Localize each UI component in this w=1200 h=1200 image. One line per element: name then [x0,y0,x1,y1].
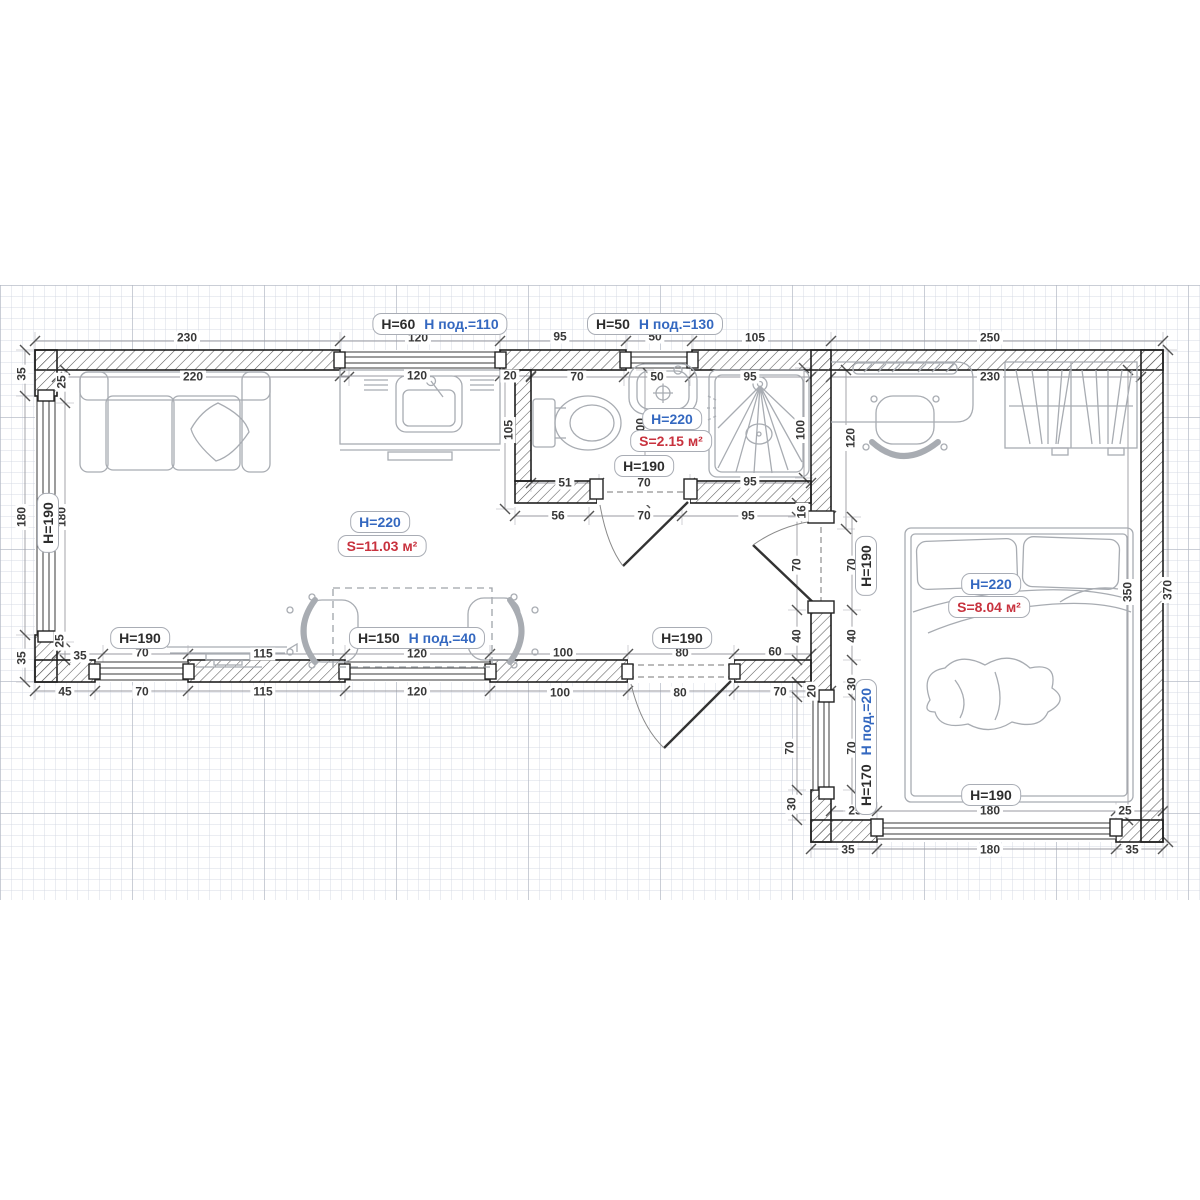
note-badge: S=11.03 м² [338,535,427,557]
note-badge: H=190 [855,536,877,596]
dimension-label: 50 [647,371,666,384]
note-badge: H=220 [350,511,410,533]
dimension-label: 220 [180,371,206,384]
dimension-label: 180 [16,504,29,530]
dimension-label: 35 [1122,844,1141,857]
dimension-label: 70 [634,477,653,490]
note-badge: H=190 [652,627,712,649]
note-badge: H=60H под.=110 [372,313,507,335]
dimension-label: 80 [670,687,689,700]
dimension-label: 70 [784,738,797,757]
dimension-label: 120 [404,686,430,699]
dimension-label: 100 [547,687,573,700]
dimension-label: 95 [740,476,759,489]
dimension-label: 40 [846,626,859,645]
note-badge-text: H под.=20 [857,688,875,755]
note-badge-text: S=2.15 м² [639,432,703,450]
dimension-label: 180 [977,805,1003,818]
note-badge-text: H=170 [857,764,875,806]
note-badge: S=8.04 м² [948,596,1030,618]
labels-layer: 2301209550105250220120207050952303518035… [0,0,1200,1200]
dimension-label: 105 [742,332,768,345]
dimension-label: 250 [977,332,1003,345]
dimension-label: 20 [806,681,819,700]
note-badge-text: H=190 [623,457,665,475]
note-badge: H=150H под.=40 [349,627,485,649]
dimension-label: 115 [250,686,275,699]
dimension-label: 105 [503,417,516,443]
dimension-label: 60 [765,646,784,659]
note-badge: H=170H под.=20 [855,679,877,815]
note-badge-text: H=150 [358,629,400,647]
note-badge-text: H=190 [970,786,1012,804]
note-badge: H=220 [642,408,702,430]
note-badge-text: H под.=130 [639,315,714,333]
dimension-label: 70 [770,686,789,699]
dimension-label: 70 [132,686,151,699]
dimension-label: 25 [1115,805,1134,818]
note-badge-text: H=60 [381,315,415,333]
dimension-label: 25 [56,372,69,391]
dimension-label: 40 [791,626,804,645]
dimension-label: 115 [250,648,275,661]
dimension-label: 25 [54,631,67,650]
note-badge-text: H=190 [661,629,703,647]
note-badge: H=190 [614,455,674,477]
note-badge-text: H=190 [857,545,875,587]
dimension-label: 95 [550,331,569,344]
dimension-label: 70 [791,555,804,574]
dimension-label: 120 [404,370,430,383]
dimension-label: 350 [1122,579,1135,605]
dimension-label: 20 [500,370,519,383]
dimension-label: 230 [174,332,200,345]
dimension-label: 230 [977,371,1003,384]
dimension-label: 370 [1162,577,1175,603]
note-badge-text: H=190 [39,502,57,544]
dimension-label: 16 [796,502,809,521]
dimension-label: 180 [977,844,1003,857]
dimension-label: 35 [70,650,89,663]
note-badge-text: H=220 [970,575,1012,593]
dimension-label: 51 [555,477,574,490]
note-badge-text: H под.=110 [424,315,498,333]
dimension-label: 30 [786,794,799,813]
note-badge: H=190 [37,493,59,553]
note-badge-text: S=11.03 м² [347,537,418,555]
dimension-label: 45 [55,686,74,699]
dimension-label: 100 [795,417,808,443]
dimension-label: 56 [548,510,567,523]
note-badge-text: H=220 [651,410,693,428]
dimension-label: 70 [567,371,586,384]
floor-plan-page: 2301209550105250220120207050952303518035… [0,0,1200,1200]
dimension-label: 35 [838,844,857,857]
dimension-label: 95 [740,371,759,384]
dimension-label: 35 [16,364,29,383]
note-badge: H=190 [110,627,170,649]
note-badge: H=50H под.=130 [587,313,723,335]
dimension-label: 35 [16,648,29,667]
dimension-label: 120 [404,648,430,661]
note-badge: H=190 [961,784,1021,806]
dimension-label: 95 [738,510,757,523]
dimension-label: 120 [845,425,858,451]
note-badge-text: S=8.04 м² [957,598,1021,616]
note-badge: S=2.15 м² [630,430,712,452]
note-badge-text: H под.=40 [409,629,476,647]
note-badge-text: H=190 [119,629,161,647]
note-badge: H=220 [961,573,1021,595]
note-badge-text: H=220 [359,513,401,531]
dimension-label: 70 [634,510,653,523]
dimension-label: 100 [550,647,576,660]
note-badge-text: H=50 [596,315,630,333]
